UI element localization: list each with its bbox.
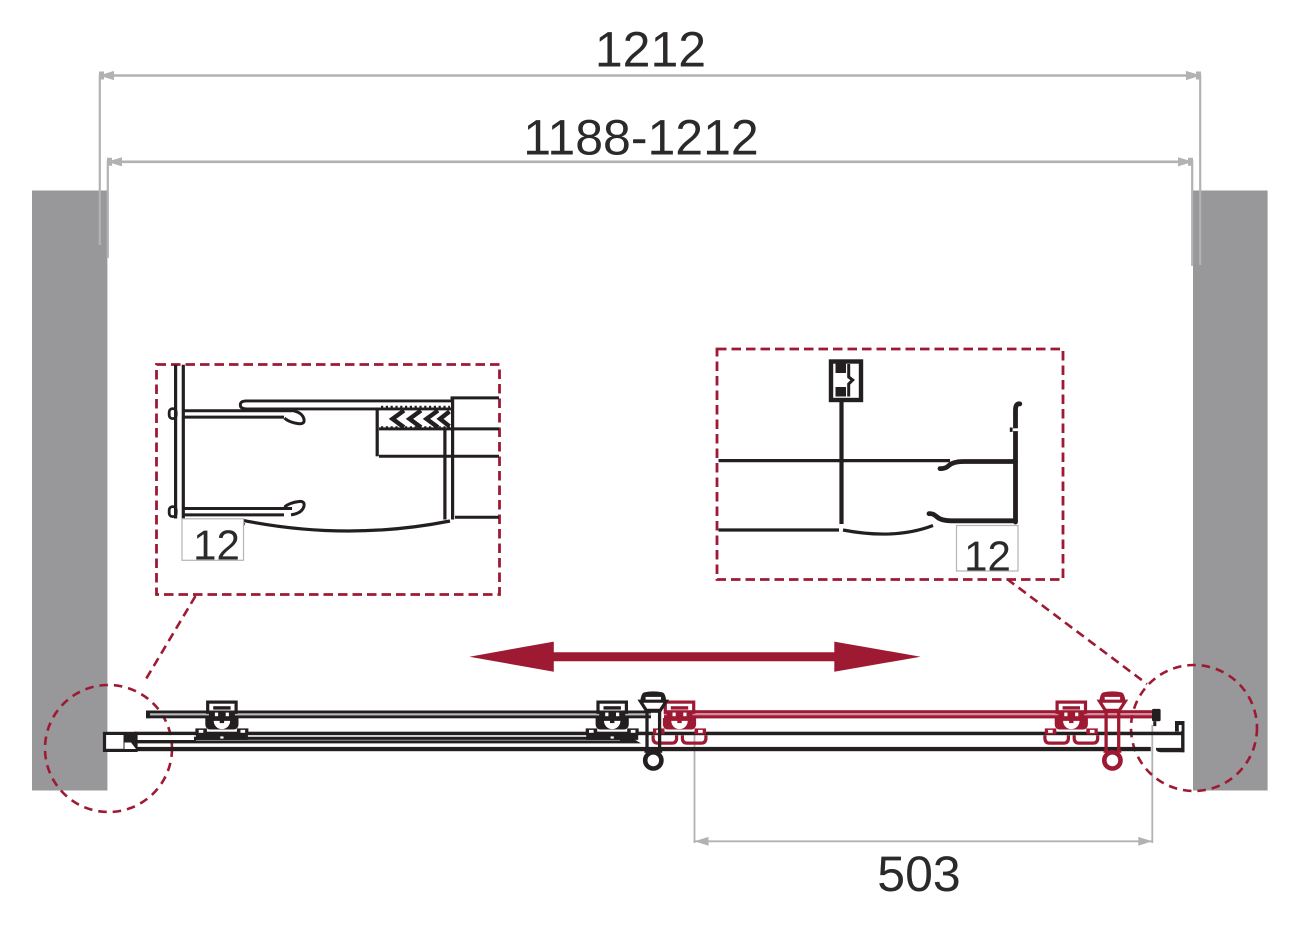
svg-text:1188-1212: 1188-1212 — [523, 110, 758, 166]
svg-text:1212: 1212 — [595, 22, 706, 78]
svg-text:503: 503 — [877, 846, 960, 902]
svg-text:12: 12 — [964, 533, 1011, 580]
svg-text:12: 12 — [193, 522, 240, 569]
